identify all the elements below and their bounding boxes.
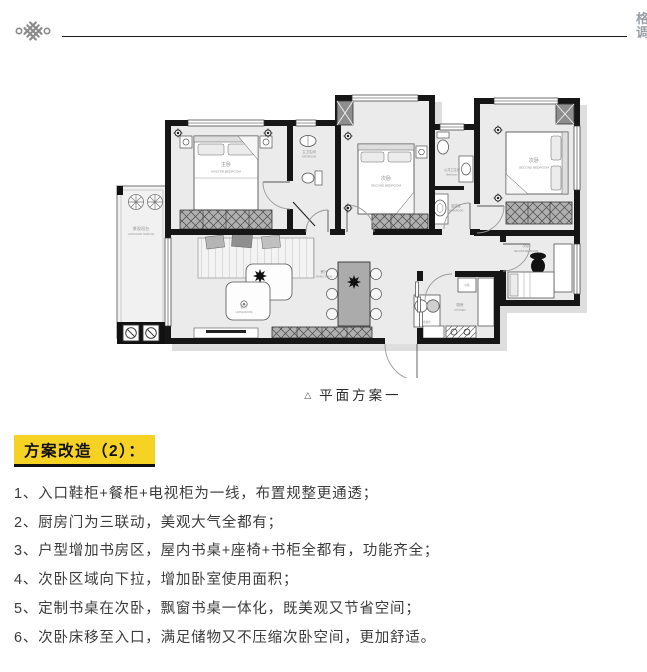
room-label-study-en: SECOND BEDROOM — [514, 250, 538, 253]
floor-plan: 主卧 MASTER BEDROOM 景观阳台 LANDSCAPE TERRACE… — [110, 86, 602, 378]
balcony — [117, 186, 167, 344]
sink-bowl-icon — [427, 300, 439, 312]
room-label-washroom-cn: 盥洗区 — [451, 203, 461, 208]
chinese-knot-icon — [14, 10, 52, 50]
room-label-bedroom3-en: SECOND BEDROOM — [519, 166, 550, 170]
cushion — [262, 235, 281, 249]
coffee-table — [226, 282, 270, 320]
dining-furniture — [327, 262, 382, 326]
pillow — [388, 152, 411, 162]
room-label-kitchen-cn: 厨房 — [456, 302, 464, 307]
plant-pot-icon — [148, 195, 163, 210]
tv-icon — [206, 330, 246, 333]
room-label-kitchen-en: KITCHEN — [455, 309, 466, 312]
cushion — [231, 233, 252, 248]
room-label-masterbath-en: BATHROOM — [302, 156, 316, 159]
floor-plan-drawing: 主卧 MASTER BEDROOM 景观阳台 LANDSCAPE TERRACE… — [110, 86, 602, 378]
chair-icon — [371, 309, 382, 320]
cushion — [205, 235, 224, 249]
watermark-logo: 格调 — [636, 12, 647, 60]
note-item-2: 2、厨房门为三联动，美观大气全都有； — [14, 516, 639, 531]
note-item-3: 3、户型增加书房区，屋内书桌+座椅+书柜全都有，功能齐全； — [14, 544, 639, 559]
room-label-dining-en: DINING ROOM — [316, 276, 332, 279]
pillow — [198, 144, 224, 155]
room-label-publicbath-cn: 公共卫生间 — [444, 167, 460, 172]
note-item-1: 1、入口鞋柜+餐柜+电视柜为一线，布置规整更通透； — [14, 487, 639, 502]
room-label-living-cn: 客厅 — [240, 304, 248, 309]
master-bedroom-furniture — [180, 136, 272, 229]
pillow — [551, 166, 561, 190]
chair-icon — [371, 269, 382, 280]
counter — [478, 278, 494, 326]
room-label-living-en: LIVING ROOM — [236, 311, 253, 314]
room-label-terrace-cn: 景观阳台 — [133, 225, 150, 232]
dining-table — [338, 262, 370, 326]
chair-icon — [327, 289, 338, 300]
sink-icon — [462, 163, 471, 175]
note-item-6: 6、次卧床移至入口，满足储物又不压缩次卧空间，更加舒适。 — [14, 631, 639, 646]
chair-icon — [327, 309, 338, 320]
sink-unit-icon — [143, 325, 159, 341]
room-label-master-en: MASTER BEDROOM — [211, 170, 241, 174]
watermark-text: 格调 — [636, 12, 647, 39]
room-label-master-cn: 主卧 — [221, 160, 231, 168]
pillow — [361, 152, 384, 162]
plan-caption: △ 平面方案一 — [60, 384, 646, 404]
second-bedroom2-furniture — [506, 132, 572, 224]
label-prep-counter: 备餐台 — [423, 320, 431, 324]
desk — [554, 244, 572, 292]
note-item-5: 5、定制书桌在次卧，飘窗书桌一体化，既美观又节省空间； — [14, 602, 639, 617]
room-label-bedroom3-cn: 次卧 — [529, 156, 539, 164]
triangle-marker: △ — [304, 390, 312, 400]
toilet-icon — [302, 173, 314, 183]
room-label-bedroom2-en: SECOND BEDROOM — [371, 184, 402, 188]
toilet-icon — [438, 140, 449, 154]
plant-pot-icon — [129, 195, 144, 210]
room-label-washroom-en: WASHROOM — [449, 210, 464, 213]
chair-icon — [371, 289, 382, 300]
room-label-terrace-en: LANDSCAPE TERRACE — [128, 233, 155, 236]
room-label-masterbath-cn: 主卫生间 — [302, 149, 316, 154]
room-label-dining-cn: 餐厅 — [320, 269, 328, 274]
sink-bowl-icon — [415, 300, 427, 312]
pillow — [551, 136, 561, 160]
header-divider — [62, 36, 627, 37]
section-title: 方案改造（2）： — [14, 435, 155, 467]
room-label-study-cn: 次卧 — [522, 243, 530, 248]
room-label-bedroom2-cn: 次卧 — [381, 174, 391, 182]
label-fridge: 冰箱 — [464, 283, 470, 287]
note-item-4: 4、次卧区域向下拉，增加卧室使用面积； — [14, 573, 639, 588]
room-label-publicbath-en: Bathroom — [446, 173, 457, 177]
notes-list: 1、入口鞋柜+餐柜+电视柜为一线，布置规整更通透； 2、厨房门为三联动，美观大气… — [14, 487, 639, 659]
washer-icon — [123, 325, 139, 341]
plan-caption-text: 平面方案一 — [319, 388, 402, 403]
wash-basin-icon — [434, 200, 446, 216]
